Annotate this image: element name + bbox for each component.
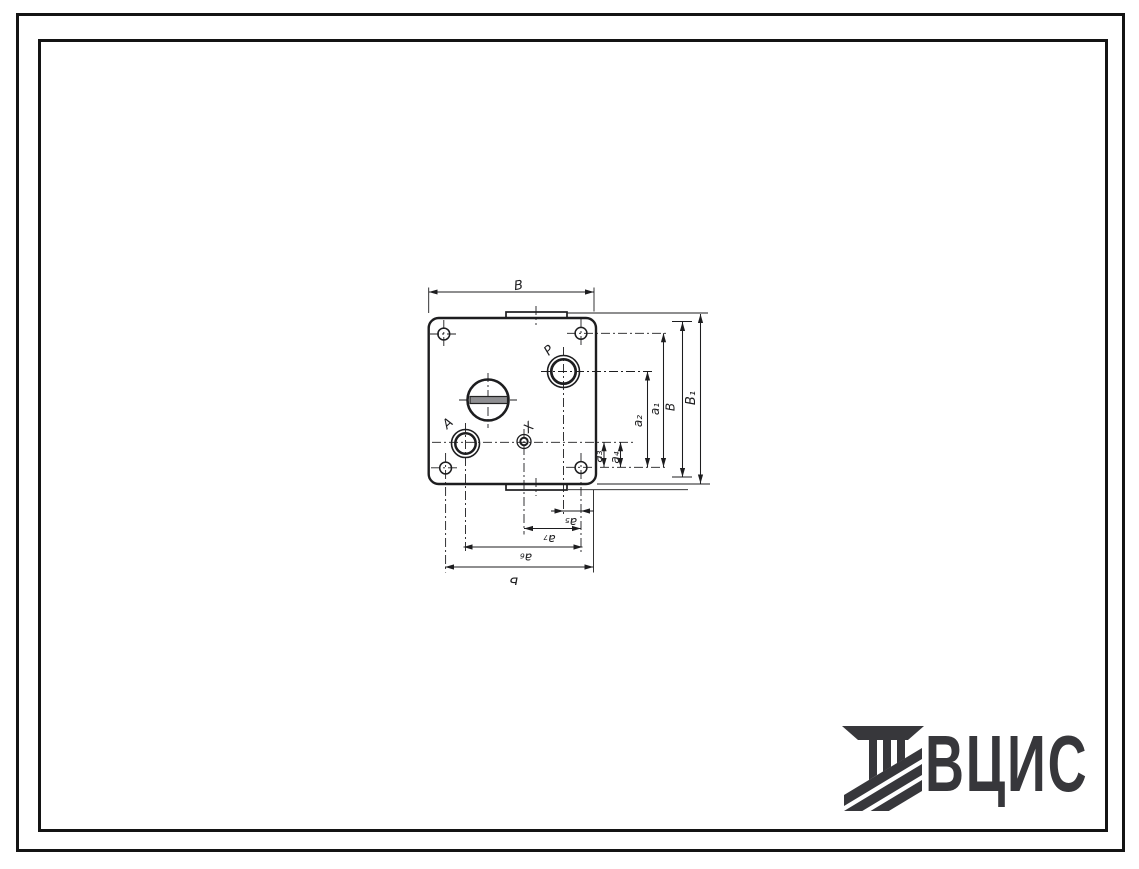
label-a5: а₅	[565, 515, 577, 529]
label-length: Б	[509, 574, 518, 586]
technical-drawing: В а₃ а₄ а₂ а₁ В В₁ а₅ а₇ а₆ Б А Р Х	[400, 270, 715, 585]
logo-text: ВЦИС	[925, 718, 1088, 810]
logo: ВЦИС	[842, 718, 1092, 818]
label-a1: а₁	[648, 403, 662, 415]
emblem-bar-1	[869, 740, 877, 780]
drawing-sheet: В а₃ а₄ а₂ а₁ В В₁ а₅ а₇ а₆ Б А Р Х	[0, 0, 1139, 869]
emblem-bar-2	[883, 740, 891, 772]
label-b: В	[664, 403, 678, 411]
logo-emblem-icon	[842, 721, 924, 811]
label-a4: а₄	[608, 451, 622, 463]
label-a6: а₆	[520, 551, 532, 565]
label-top-width: В	[513, 278, 524, 294]
emblem-roof	[842, 726, 924, 740]
plate-outline	[429, 318, 596, 484]
label-a2: а₂	[631, 415, 645, 427]
label-b1: В₁	[684, 391, 699, 405]
plug-slot	[470, 397, 508, 404]
label-a3: а₃	[591, 450, 605, 462]
label-a7: а₇	[543, 532, 555, 546]
